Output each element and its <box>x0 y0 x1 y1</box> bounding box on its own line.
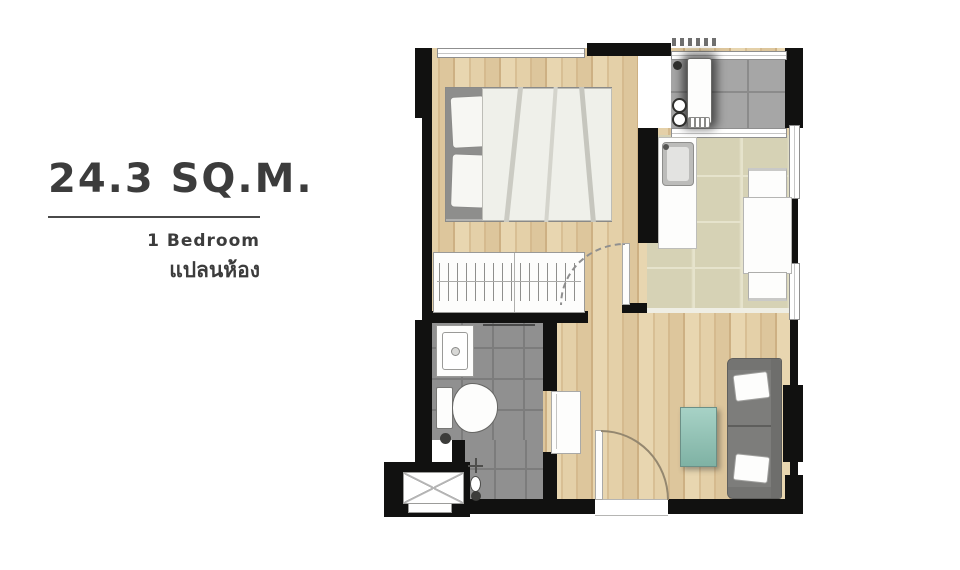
wall-right-sofa-pier <box>783 385 803 462</box>
floor-drain-icon <box>440 433 451 444</box>
bedroom-window <box>437 48 585 58</box>
stove-burner-icon <box>672 98 687 113</box>
dining-table <box>743 197 792 274</box>
bed <box>445 87 612 222</box>
duvet-fold <box>504 87 523 222</box>
ac-unit-feet <box>408 503 452 513</box>
duvet-fold <box>579 87 596 222</box>
sofa-backrest <box>771 359 781 498</box>
toilet-bowl <box>452 383 498 433</box>
plan-label-thai: แปลนห้อง <box>48 254 260 287</box>
wall-left <box>422 48 432 320</box>
toilet <box>436 383 498 431</box>
wall-top-mid <box>587 43 671 56</box>
wardrobe-divider <box>514 253 515 312</box>
shower-drain-icon <box>471 491 481 501</box>
wall-bottom-right <box>668 499 785 514</box>
wall-top-right-pier <box>785 48 803 128</box>
sofa-cushion-divider <box>728 425 771 427</box>
wardrobe-rod <box>437 281 581 282</box>
glass-partition <box>483 324 535 326</box>
shower-valve-icon <box>468 458 483 473</box>
unit-area-label: 24.3 SQ.M. <box>48 158 260 200</box>
dining-chair-bottom <box>748 272 787 301</box>
duvet-fold <box>544 87 557 222</box>
shower-drain-oval-icon <box>470 476 481 492</box>
wall-bathroom-left <box>415 320 432 465</box>
vent-grate-icon <box>688 117 710 128</box>
washer-knob-icon <box>673 61 682 70</box>
sofa-armrest-top <box>728 359 771 370</box>
entry-threshold <box>595 499 668 516</box>
ac-unit-icon <box>403 472 464 504</box>
sofa <box>727 358 782 499</box>
bathroom-door-leaf <box>551 391 581 454</box>
sofa-pillow <box>732 371 770 402</box>
info-panel: 24.3 SQ.M. 1 Bedroom แปลนห้อง <box>48 158 260 287</box>
sofa-armrest-bottom <box>728 487 771 498</box>
floor-plan <box>370 25 820 535</box>
balcony-access-gap <box>638 56 671 128</box>
wardrobe-hangers <box>439 263 579 301</box>
wall-bedroom-kitchen <box>638 128 658 243</box>
wall-bathroom-right-a <box>543 311 557 391</box>
kitchen-threshold <box>647 308 790 313</box>
sofa-pillow <box>733 453 771 484</box>
divider-line <box>48 216 260 218</box>
wall-bottom-mid <box>465 499 595 514</box>
stove-burner-icon <box>672 112 687 127</box>
faucet-icon <box>663 144 669 150</box>
wall-bottom-right-corner <box>785 475 803 514</box>
balcony-vent-icons <box>672 38 718 46</box>
toilet-tank <box>436 387 453 429</box>
washer-counter <box>687 58 712 124</box>
vanity-sink <box>436 325 474 377</box>
vanity-drain-icon <box>451 347 460 356</box>
bed-duvet <box>482 88 612 221</box>
wall-bathroom-right-b <box>543 452 557 499</box>
dining-window-upper <box>789 125 800 199</box>
rug <box>680 407 717 467</box>
bedroom-count-label: 1 Bedroom <box>48 231 260 251</box>
